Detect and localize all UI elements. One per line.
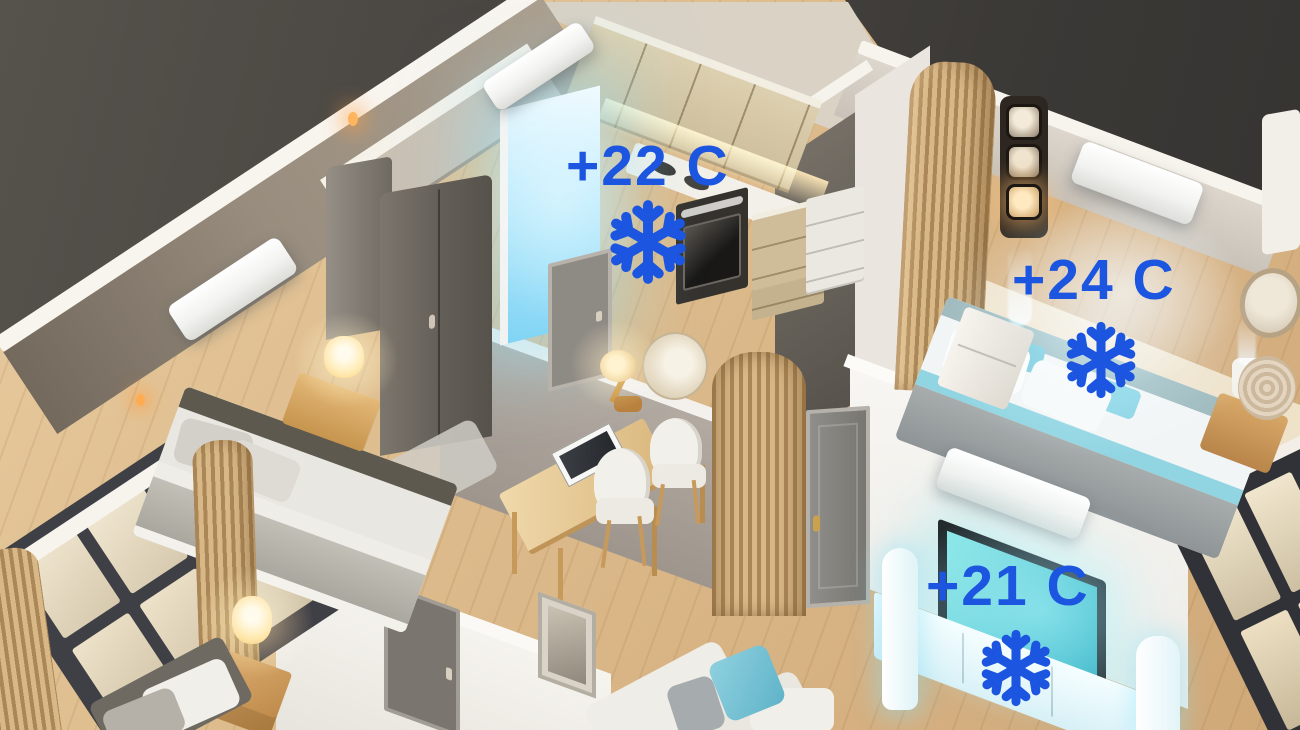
door-panel: [818, 423, 858, 590]
door-handle: [596, 311, 602, 322]
apartment-scene: +22 C +24 C +21 C: [0, 0, 1300, 730]
table-leg: [512, 512, 517, 574]
speaker: [882, 548, 918, 710]
temperature-overlay-living-room: +21 C: [926, 558, 1090, 615]
console-seam: [962, 633, 964, 684]
wardrobe-handle: [429, 314, 435, 329]
temperature-label-kitchen: +22 C: [566, 138, 730, 195]
table-lamp: [232, 596, 272, 644]
lamp-base: [614, 396, 642, 412]
speaker: [1136, 636, 1180, 730]
niche-cell: [1006, 144, 1042, 180]
snowflake-icon: [1060, 319, 1142, 401]
dining-chair: [594, 448, 654, 548]
temperature-overlay-kitchen: +22 C: [566, 138, 730, 195]
table-lamp: [324, 336, 364, 378]
desk-lamp: [596, 344, 666, 434]
niche-cell: [1006, 104, 1042, 140]
wall-decor-round: [1238, 356, 1296, 420]
door-handle: [446, 667, 452, 681]
sofa: [580, 628, 840, 730]
drawer-seams: [806, 185, 864, 295]
wall-sconce: [136, 394, 145, 406]
niche-cell-lit: [1006, 184, 1042, 220]
interior-door-hall: [806, 406, 870, 608]
kitchen-cabinet-white: [806, 185, 864, 295]
temperature-overlay-bedroom: +24 C: [1012, 252, 1176, 309]
drawer-seam: [958, 344, 1017, 368]
snowflake-icon: [603, 197, 693, 287]
wardrobe: [380, 174, 492, 456]
door-handle: [813, 515, 820, 531]
curtain-hall: [712, 352, 806, 616]
wardrobe-seam: [438, 189, 440, 439]
temperature-label-living-room: +21 C: [926, 558, 1090, 615]
snowflake-icon: [975, 627, 1057, 709]
shelf-niche: [1000, 96, 1048, 238]
lamp-head: [600, 350, 636, 382]
wardrobe-pillar-right: [1262, 109, 1300, 256]
temperature-label-bedroom: +24 C: [1012, 252, 1176, 309]
chair-seat: [596, 498, 654, 524]
wall-sconce: [348, 112, 358, 126]
